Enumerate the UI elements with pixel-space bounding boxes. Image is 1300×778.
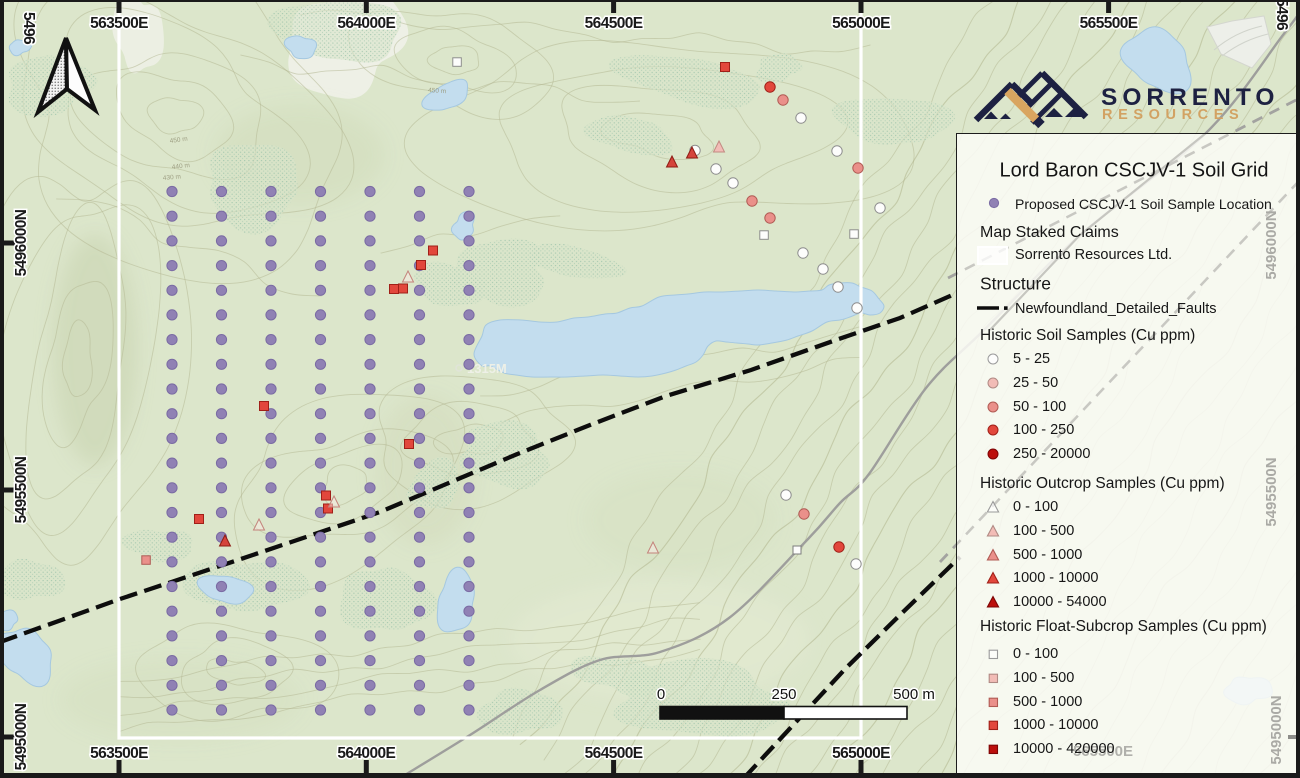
svg-text:5495500N: 5495500N xyxy=(1263,457,1280,526)
svg-text:5496000N: 5496000N xyxy=(1263,210,1280,279)
svg-text:5495000N: 5495000N xyxy=(1268,695,1285,764)
